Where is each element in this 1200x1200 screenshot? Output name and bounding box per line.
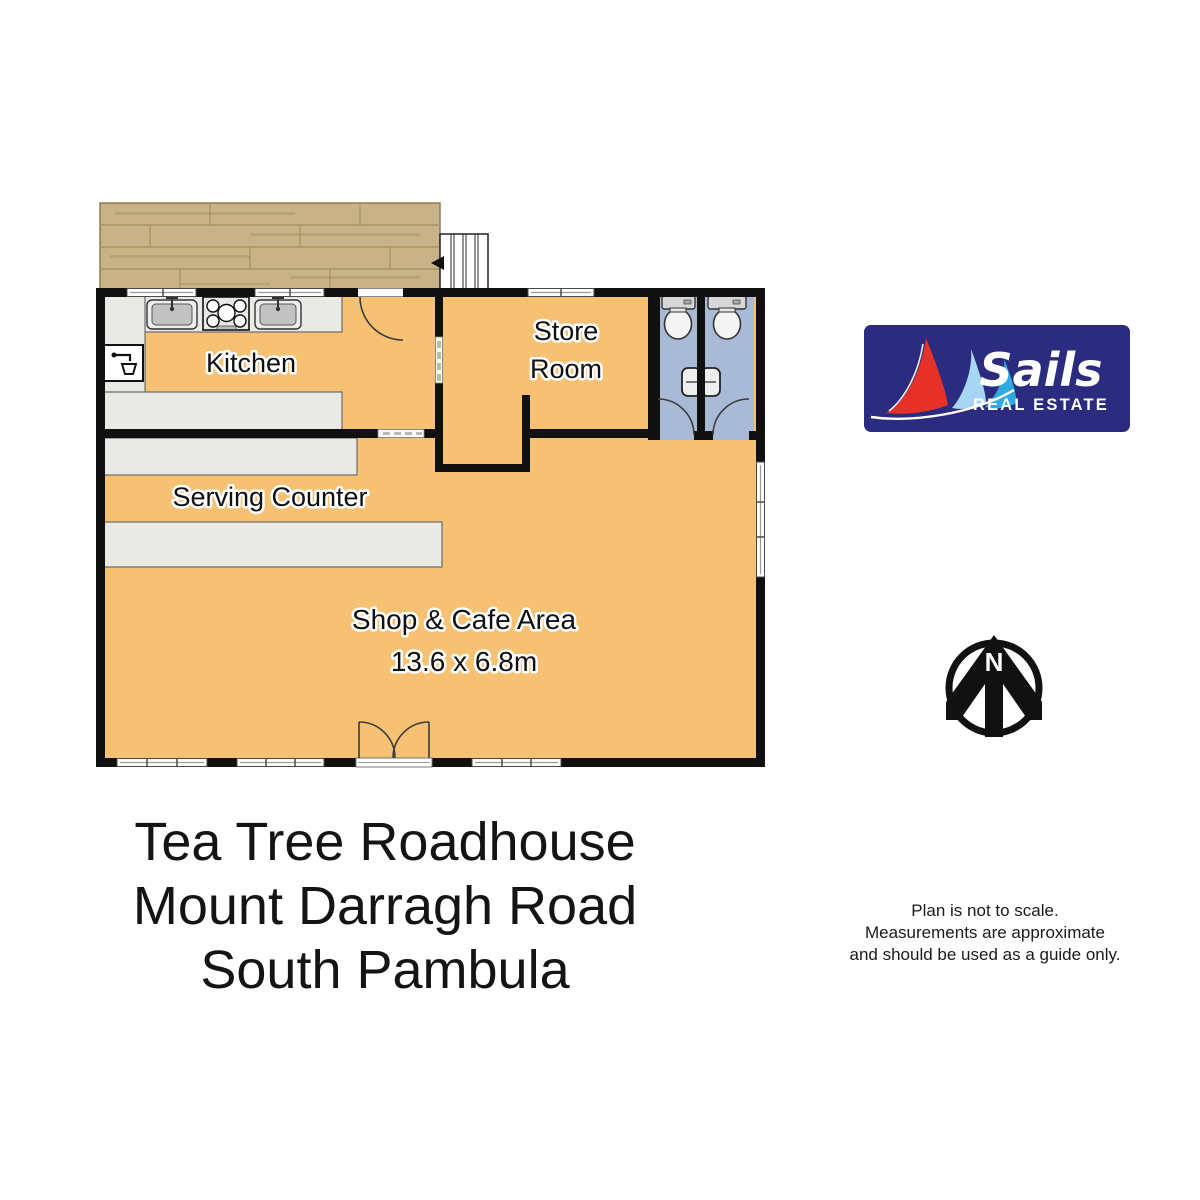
window-icon [757,462,765,577]
wall-store-nook-bottom [435,464,530,472]
store-room-label-line1: Store [534,316,599,346]
serving-counter-lower [104,522,442,567]
shop-cafe-label: Shop & Cafe Area [352,604,577,635]
disclaimer-line1: Plan is not to scale. [911,901,1058,920]
floor-plan-page: Kitchen Store Room Serving Counter Shop … [0,0,1200,1200]
floor-plan-canvas: Kitchen Store Room Serving Counter Shop … [0,0,1200,1200]
kitchen-label: Kitchen [206,348,296,378]
address-line2: Mount Darragh Road [133,876,637,936]
compass-label: N [985,647,1004,677]
toilet-icon [662,296,695,339]
wall-wc-left [648,288,660,440]
store-room-label-line2: Room [530,354,602,384]
wall-wc-bottom-b [694,431,713,440]
wall-store-bottom [522,429,652,438]
property-address: Tea Tree Roadhouse Mount Darragh Road So… [133,812,637,1000]
shop-cafe-dimensions: 13.6 x 6.8m [391,646,537,677]
address-line1: Tea Tree Roadhouse [134,812,635,872]
window-icon [237,759,324,767]
disclaimer-line2: Measurements are approximate [865,923,1105,942]
logo-brand-text: Sails [979,343,1102,397]
wall-wc-divider [697,288,705,440]
north-arrow-icon: N [946,635,1042,737]
tap-icon [104,345,143,381]
address-line3: South Pambula [200,940,570,1000]
disclaimer-note: Plan is not to scale. Measurements are a… [850,901,1121,964]
logo-tagline-text: REAL ESTATE [973,396,1109,414]
wall-left [96,288,105,767]
serving-counter-upper [104,438,357,475]
wall-wc-bottom-a [648,431,658,440]
sink-icon [255,298,301,329]
deck-area [100,203,440,291]
sink-icon [147,298,197,329]
kitchen-bench-bottom [104,392,342,430]
wall-wc-bottom-c [749,431,765,440]
stove-icon [203,297,249,330]
serving-counter-label: Serving Counter [172,482,367,512]
window-icon [255,289,324,297]
window-icon [528,289,594,297]
window-icon [472,759,561,767]
stairs-icon [431,234,488,291]
window-icon [127,289,196,297]
brand-logo: Sails REAL ESTATE [864,325,1130,432]
window-icon [117,759,207,767]
disclaimer-line3: and should be used as a guide only. [850,945,1121,964]
